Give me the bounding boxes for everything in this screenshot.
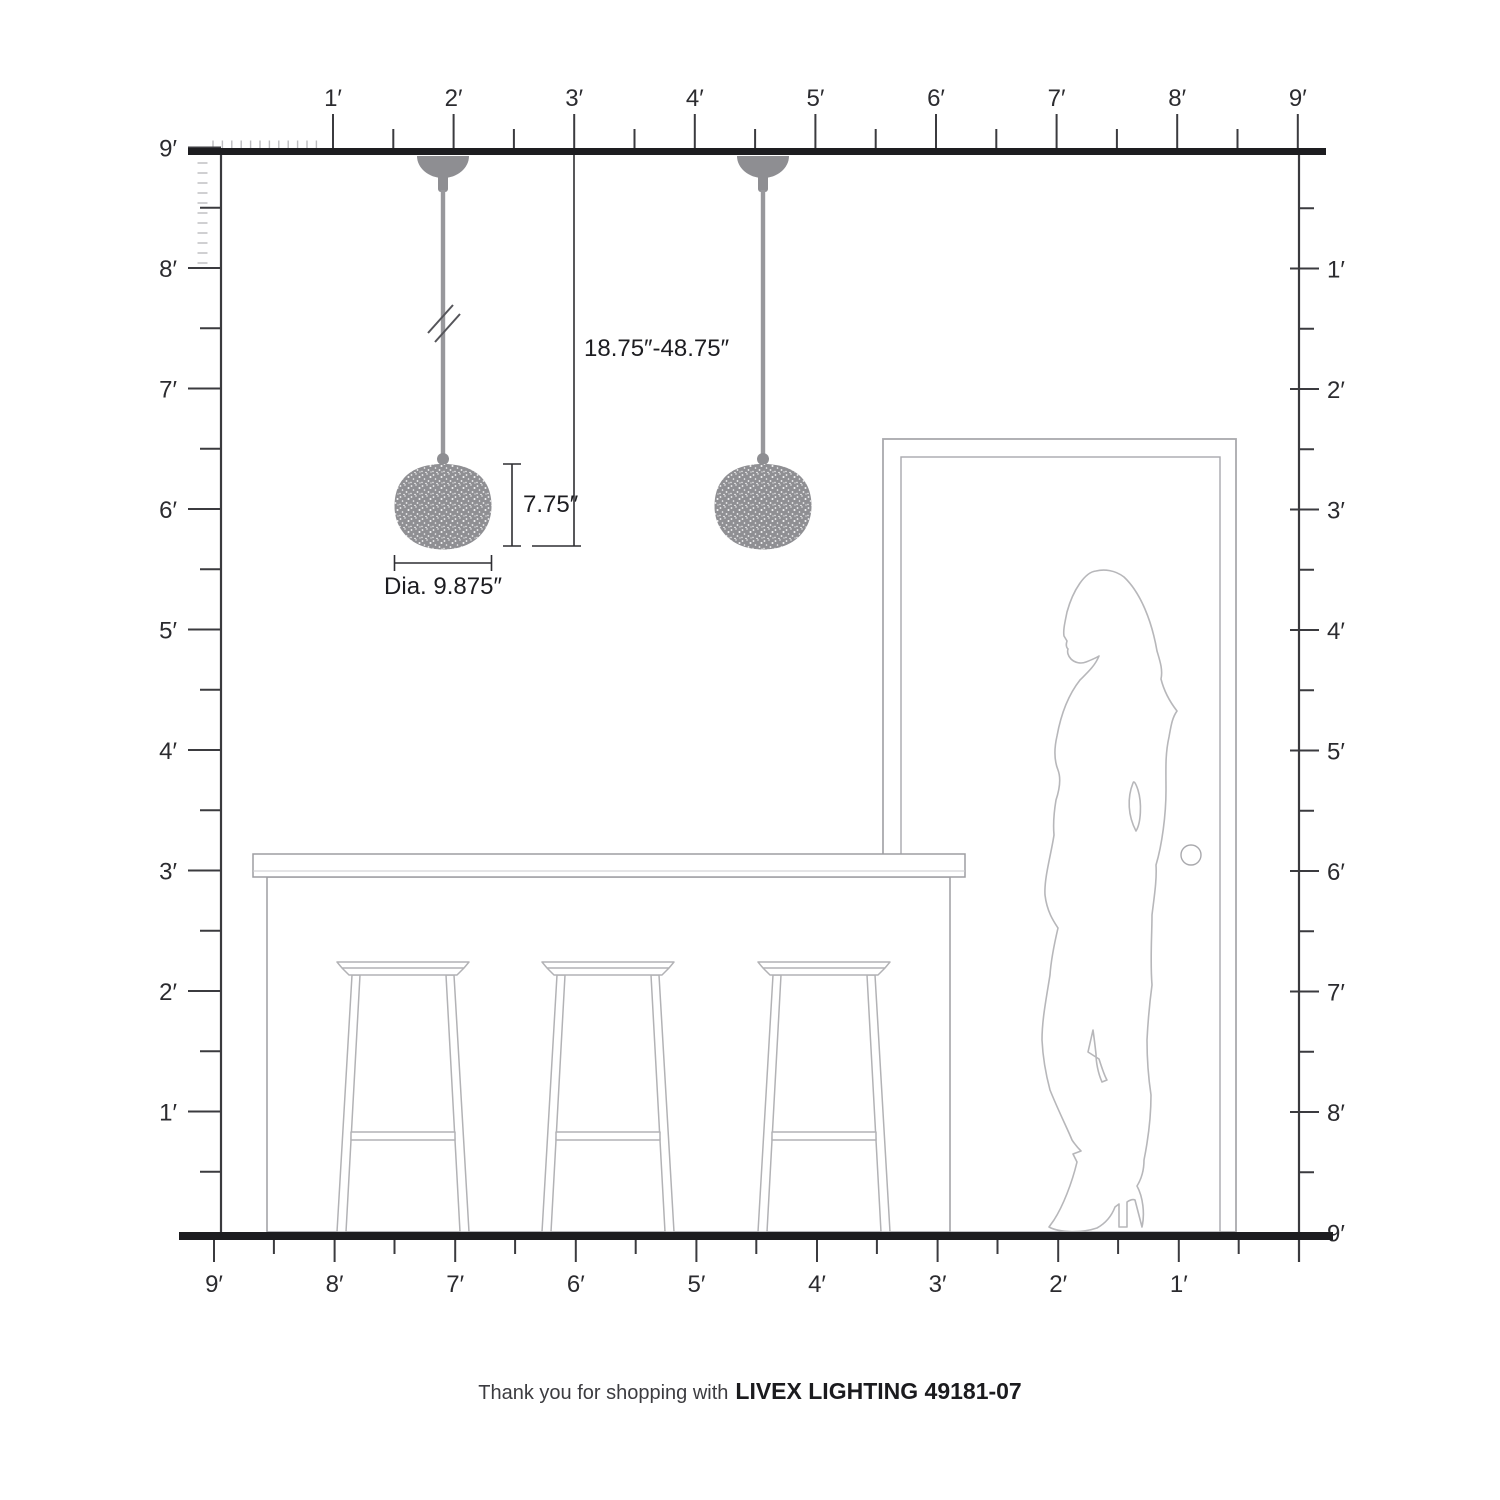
ruler-label: 1′ xyxy=(1327,257,1345,284)
spec-sheet-page: 1′2′3′4′5′6′7′8′9′ 9′8′7′6′5′4′3′2′1′ 1′… xyxy=(0,0,1500,1500)
ruler-label: 6′ xyxy=(1327,859,1345,886)
ruler-label: 7′ xyxy=(446,1271,464,1298)
ruler-label: 2′ xyxy=(445,85,463,112)
elevation-diagram: 1′2′3′4′5′6′7′8′9′ 9′8′7′6′5′4′3′2′1′ 1′… xyxy=(0,0,1500,1500)
ruler-label: 1′ xyxy=(324,85,342,112)
ceiling-line xyxy=(188,148,1326,155)
ruler-label: 1′ xyxy=(159,1100,177,1127)
ruler-label: 5′ xyxy=(159,618,177,645)
ruler-label: 4′ xyxy=(686,85,704,112)
island-base xyxy=(267,877,950,1232)
ruler-label: 6′ xyxy=(159,497,177,524)
hang-range-label: 18.75″-48.75″ xyxy=(584,335,730,362)
ruler-label: 8′ xyxy=(159,256,177,283)
ruler-label: 4′ xyxy=(159,738,177,765)
ruler-label: 9′ xyxy=(159,136,177,163)
ruler-label: 9′ xyxy=(1289,85,1307,112)
ruler-label: 7′ xyxy=(1327,980,1345,1007)
ruler-top: 1′2′3′4′5′6′7′8′9′ xyxy=(213,85,1307,150)
kitchen-island xyxy=(253,854,965,1232)
ruler-label: 3′ xyxy=(159,859,177,886)
ruler-label: 4′ xyxy=(1327,618,1345,645)
ruler-label: 9′ xyxy=(205,1271,223,1298)
door-knob xyxy=(1181,845,1201,865)
ruler-label: 3′ xyxy=(1327,498,1345,525)
ruler-label: 3′ xyxy=(929,1271,947,1298)
ruler-label: 5′ xyxy=(1327,739,1345,766)
rod-break-mark xyxy=(435,314,460,342)
ruler-label: 1′ xyxy=(1170,1271,1188,1298)
ruler-label: 7′ xyxy=(159,377,177,404)
island-countertop xyxy=(253,854,965,877)
ruler-label: 8′ xyxy=(1327,1100,1345,1127)
ruler-bottom: 9′8′7′6′5′4′3′2′1′ xyxy=(205,1240,1239,1298)
ruler-label: 6′ xyxy=(927,85,945,112)
shade-diameter-label: Dia. 9.875″ xyxy=(384,573,502,600)
pendant-left-body xyxy=(395,156,492,550)
ruler-label: 2′ xyxy=(1327,377,1345,404)
footer-brand-model: LIVEX LIGHTING 49181-07 xyxy=(735,1378,1021,1404)
ruler-left: 9′8′7′6′5′4′3′2′1′ xyxy=(159,136,221,1172)
ruler-label: 4′ xyxy=(808,1271,826,1298)
pendant-left xyxy=(395,156,492,550)
shade-height-label: 7.75″ xyxy=(523,491,579,518)
floor-line xyxy=(179,1232,1333,1240)
ruler-label: 6′ xyxy=(567,1271,585,1298)
ruler-label: 2′ xyxy=(159,979,177,1006)
footer-note: Thank you for shopping withLIVEX LIGHTIN… xyxy=(0,1378,1500,1405)
ruler-label: 8′ xyxy=(1168,85,1186,112)
rod-break-mark xyxy=(428,305,453,333)
ruler-label: 5′ xyxy=(687,1271,705,1298)
ruler-label: 7′ xyxy=(1048,85,1066,112)
ruler-label: 8′ xyxy=(326,1271,344,1298)
ruler-label: 3′ xyxy=(565,85,583,112)
footer-thankyou-text: Thank you for shopping with xyxy=(478,1382,728,1404)
ruler-label: 5′ xyxy=(806,85,824,112)
ruler-label: 2′ xyxy=(1049,1271,1067,1298)
